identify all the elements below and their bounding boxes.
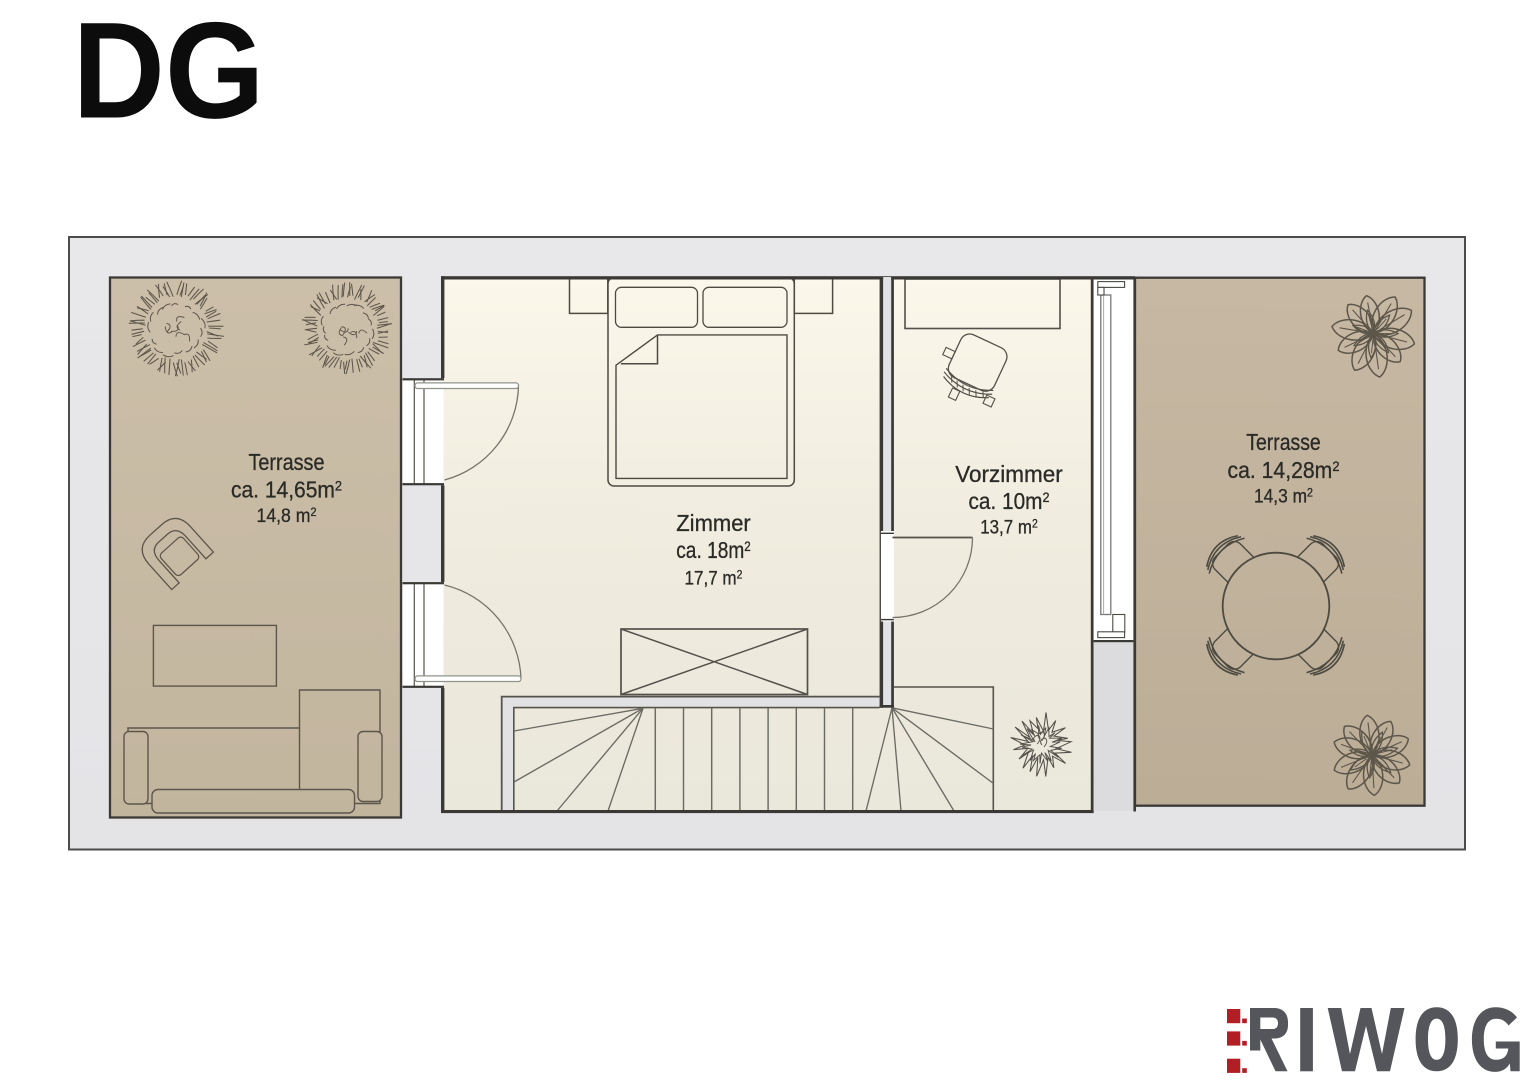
svg-text:Terrasse: Terrasse — [249, 449, 325, 475]
svg-text:ca. 14,65m2: ca. 14,65m2 — [231, 476, 342, 502]
svg-text:ca. 14,28m2: ca. 14,28m2 — [1228, 457, 1340, 483]
svg-text:13,7 m2: 13,7 m2 — [980, 516, 1038, 538]
svg-text:14,8 m2: 14,8 m2 — [257, 505, 317, 527]
svg-text:DG: DG — [73, 0, 265, 148]
svg-text:17,7 m2: 17,7 m2 — [685, 567, 743, 589]
svg-text:Terrasse: Terrasse — [1246, 429, 1321, 455]
svg-text:Zimmer: Zimmer — [676, 510, 751, 536]
svg-text:Vorzimmer: Vorzimmer — [955, 461, 1063, 487]
svg-text:14,3 m2: 14,3 m2 — [1254, 485, 1313, 507]
svg-text:ca. 10m2: ca. 10m2 — [969, 488, 1050, 514]
svg-text:ca. 18m2: ca. 18m2 — [676, 537, 751, 563]
